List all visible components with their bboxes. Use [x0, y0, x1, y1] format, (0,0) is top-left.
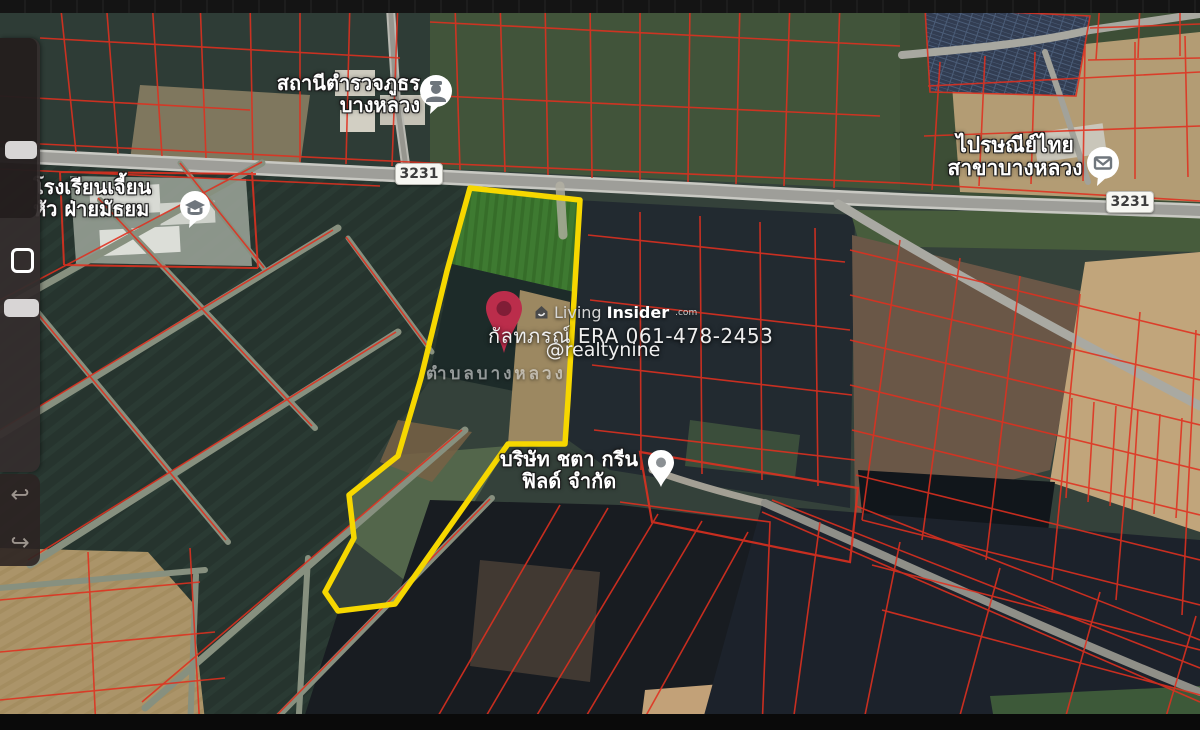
undo-redo-panel: ↩ ↪: [0, 474, 40, 566]
poi-label-police-station[interactable]: สถานีตำรวจภูธร บางหลวง: [248, 72, 420, 116]
undo-button[interactable]: ↩: [0, 484, 40, 507]
rectangle-tool-button[interactable]: [11, 248, 34, 273]
poi-label-company[interactable]: บริษัท ชตา กรีน ฟิลด์ จำกัด: [490, 448, 648, 492]
envelope-icon[interactable]: [1084, 144, 1124, 190]
poi-label-line: บางหลวง: [248, 94, 420, 116]
area-label: ตำบลบางหลวง: [426, 360, 566, 387]
satellite-map-canvas[interactable]: [0, 0, 1200, 730]
poi-label-line: สถานีตำรวจภูธร: [248, 72, 420, 94]
annotation-toolbar: [0, 38, 40, 472]
poi-label-line: โรงเรียนเจี้ยน: [33, 176, 183, 198]
bottom-letterbox-bar: [0, 714, 1200, 730]
living-insider-logo-icon: [534, 305, 549, 320]
top-letterbox-bar: [0, 0, 1200, 13]
place-pin-icon[interactable]: [645, 448, 677, 490]
terrain-regions: [0, 0, 1200, 730]
poi-label-line: บริษัท ชตา กรีน: [490, 448, 648, 470]
poi-label-post-office[interactable]: ไปรษณีย์ไทย สาขาบางหลวง: [945, 134, 1085, 180]
poi-label-line: ฟิลด์ จำกัด: [490, 470, 648, 492]
poi-label-school[interactable]: โรงเรียนเจี้ยน หัว ฝ่ายมัธยม: [33, 176, 183, 220]
highlighter-tool-button[interactable]: [4, 299, 39, 317]
watermark-handle: @realtynine: [488, 339, 718, 361]
poi-label-line: หัว ฝ่ายมัธยม: [33, 198, 183, 220]
screenshot-root: สถานีตำรวจภูธร บางหลวง โรงเรียนเจี้ยน หั…: [0, 0, 1200, 730]
graduation-cap-icon[interactable]: [177, 188, 215, 232]
road-shield: 3231: [395, 163, 443, 185]
poi-label-line: สาขาบางหลวง: [945, 157, 1085, 180]
toolbar-inset-panel: [0, 38, 37, 218]
road-shield: 3231: [1106, 191, 1154, 213]
police-officer-icon[interactable]: [417, 72, 457, 118]
redo-button[interactable]: ↪: [0, 532, 40, 555]
pen-tool-button[interactable]: [5, 141, 37, 159]
brand-suffix: .com: [675, 308, 697, 318]
poi-label-line: ไปรษณีย์ไทย: [945, 134, 1085, 157]
